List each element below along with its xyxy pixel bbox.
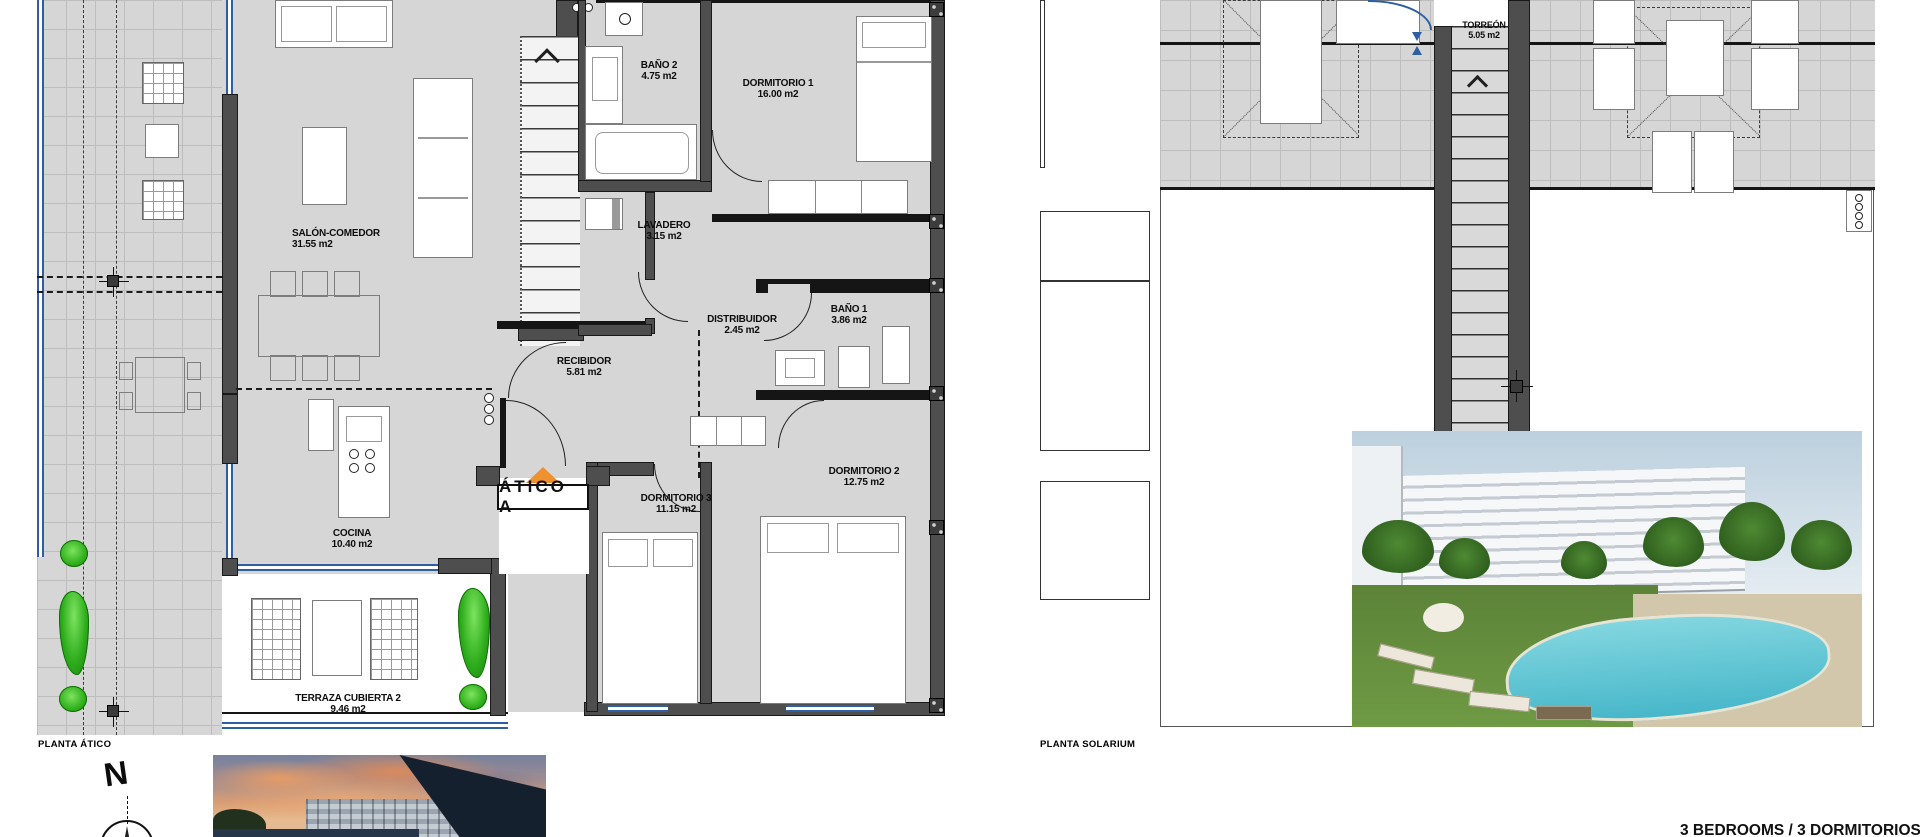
wall-segment	[810, 279, 933, 293]
wall-segment	[438, 558, 492, 574]
skylight-opening	[1260, 0, 1322, 124]
umbrella-icon	[1423, 603, 1464, 633]
palm-tree-icon	[1719, 502, 1785, 561]
axis-dash-line	[37, 291, 222, 293]
wall-segment	[700, 0, 712, 182]
terrace-table-icon	[370, 598, 418, 680]
chair-icon	[270, 355, 296, 381]
wall-segment	[222, 94, 238, 394]
kitchen-island-icon	[338, 406, 390, 518]
wardrobe-icon	[768, 180, 908, 214]
photo-pool-dusk	[213, 829, 419, 837]
survey-cross-icon	[107, 705, 119, 717]
column-marker	[929, 214, 944, 229]
level-arrow-icon	[1412, 32, 1422, 41]
plan-title-atico: PLANTA ÁTICO	[38, 739, 111, 750]
window-glazing	[222, 722, 508, 729]
wardrobe-icon	[690, 416, 766, 446]
sun-lounger-icon	[1751, 48, 1799, 110]
wall-segment	[1434, 26, 1452, 478]
wall-segment	[476, 466, 500, 486]
chair-icon	[334, 271, 360, 297]
building-sunset-photo	[213, 755, 546, 837]
washer-icon	[585, 198, 623, 230]
sofa-icon	[413, 78, 473, 258]
window-glazing	[226, 464, 233, 562]
skylight-opening	[1666, 20, 1724, 96]
bed-icon	[760, 516, 906, 704]
chair-icon	[270, 271, 296, 297]
window-glazing	[238, 564, 438, 571]
stairs	[1452, 26, 1508, 478]
room-label-dormitorio-3: DORMITORIO 311.15 m2	[641, 493, 712, 515]
wall-segment	[578, 324, 652, 336]
stairs	[520, 36, 580, 346]
room-divider-dash	[698, 330, 700, 478]
plant-icon	[59, 686, 87, 712]
room-label-dormitorio-2: DORMITORIO 212.75 m2	[829, 466, 900, 488]
shaft-circle	[484, 404, 494, 414]
room-label-terraza-cubierta-2: TERRAZA CUBIERTA 29.46 m2	[295, 693, 400, 715]
toilet-icon	[882, 326, 910, 384]
sun-lounger-icon	[1536, 706, 1592, 719]
palm-tree-icon	[1439, 538, 1490, 579]
wall-segment	[712, 0, 930, 3]
wall-segment	[578, 180, 712, 192]
room-label-recibidor: RECIBIDOR5.81 m2	[557, 356, 611, 378]
compass-north-label: N	[101, 754, 130, 795]
sun-lounger-icon	[1593, 0, 1635, 44]
room-label-torreon: TORREÓN5.05 m2	[1462, 20, 1505, 40]
chair-icon	[334, 355, 360, 381]
armchair-icon	[302, 127, 347, 205]
sun-lounger-icon	[1593, 48, 1635, 110]
door-leaf	[768, 279, 812, 284]
wall-segment	[222, 394, 238, 464]
column-marker	[929, 386, 944, 401]
column-marker	[929, 278, 944, 293]
vent-icon	[1846, 190, 1872, 232]
room-label-bano-1: BAÑO 13.86 m2	[831, 304, 868, 326]
wall-segment	[586, 466, 610, 486]
palm-tree-icon	[1362, 520, 1433, 573]
level-arrow-icon	[1412, 46, 1422, 55]
unit-label: ÁTICO A	[499, 477, 587, 517]
window-glazing	[37, 0, 44, 557]
survey-cross-icon	[107, 275, 119, 287]
chair-icon	[119, 392, 133, 410]
building-pool-photo	[1352, 431, 1862, 727]
terrace-table-icon	[145, 124, 179, 158]
room-label-lavadero: LAVADERO3.15 m2	[637, 220, 690, 242]
wall-line	[1040, 0, 1045, 168]
chair-icon	[187, 392, 201, 410]
terrace-table-icon	[251, 598, 301, 680]
wall-segment	[930, 0, 945, 704]
plant-icon	[459, 684, 487, 710]
room-label-distribuidor: DISTRIBUIDOR2.45 m2	[707, 314, 777, 336]
shower-icon	[838, 346, 870, 388]
terrace-table-icon	[142, 62, 184, 104]
bathtub-icon	[585, 124, 697, 180]
palm-tree-icon	[1791, 520, 1852, 570]
wall-segment	[490, 558, 506, 716]
compass-rose-icon	[100, 820, 154, 837]
column-marker	[929, 698, 944, 713]
sofa-icon	[275, 0, 393, 48]
terrace-table-icon	[142, 180, 184, 220]
room-label-cocina: COCINA10.40 m2	[332, 528, 373, 550]
dining-table-icon	[258, 295, 380, 357]
sink-icon	[775, 350, 825, 386]
room-divider-dash	[236, 388, 492, 390]
plan-title-solarium: PLANTA SOLARIUM	[1040, 739, 1135, 750]
setback-dash-line	[116, 0, 117, 735]
window-glazing	[226, 0, 233, 94]
wall-segment	[1508, 0, 1530, 478]
chair-icon	[187, 362, 201, 380]
shaft-circle	[484, 393, 494, 403]
chair-icon	[302, 271, 328, 297]
wall-segment	[756, 390, 933, 400]
wall-segment	[222, 558, 238, 576]
window-glazing	[608, 705, 668, 712]
party-wall-strip	[1040, 281, 1150, 451]
survey-cross-icon	[1510, 380, 1523, 393]
party-wall-strip	[1040, 211, 1150, 281]
floor-plan-sheet: ÁTICO A	[0, 0, 1920, 837]
column-marker	[929, 520, 944, 535]
chair-icon	[302, 355, 328, 381]
terrace-dining-table-icon	[135, 357, 185, 413]
plant-icon	[60, 540, 88, 567]
sun-lounger-icon	[1751, 0, 1799, 44]
unit-label-box: ÁTICO A	[497, 484, 589, 510]
chair-icon	[119, 362, 133, 380]
wall-segment	[712, 214, 930, 222]
shower-icon	[605, 2, 643, 36]
wall-segment	[756, 279, 768, 293]
bed-icon	[856, 16, 932, 162]
party-wall-strip	[1040, 481, 1150, 600]
room-label-salon-comedor: SALÓN-COMEDOR31.55 m2	[292, 228, 380, 250]
caption-bedrooms: 3 BEDROOMS / 3 DORMITORIOS	[1680, 822, 1920, 837]
room-label-bano-2: BAÑO 24.75 m2	[641, 60, 678, 82]
roof-table-icon	[1652, 131, 1692, 193]
room-label-dormitorio-1: DORMITORIO 116.00 m2	[743, 78, 814, 100]
shaft-circle	[484, 415, 494, 425]
terrace-table-icon	[312, 600, 362, 676]
bed-icon	[602, 532, 698, 704]
sink-icon	[585, 46, 623, 124]
column-marker	[929, 2, 944, 17]
axis-dash-line	[37, 276, 222, 278]
roof-table-icon	[1694, 131, 1734, 193]
kitchen-counter-icon	[308, 399, 334, 451]
window-glazing	[786, 705, 874, 712]
